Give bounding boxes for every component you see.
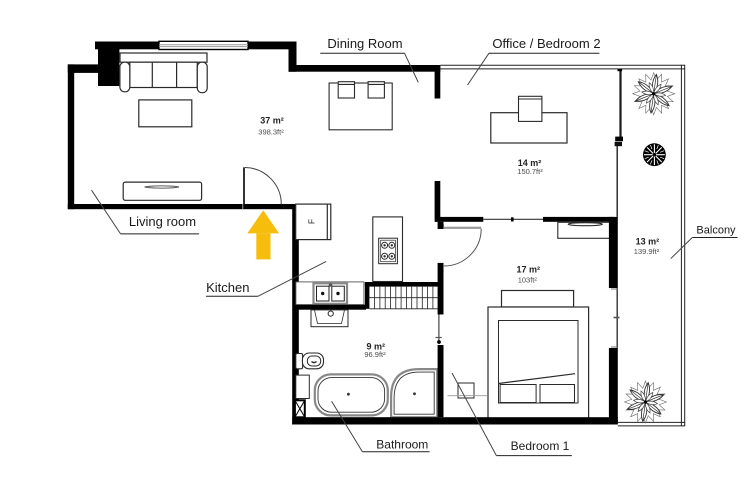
svg-text:103ft²: 103ft² — [518, 275, 538, 284]
svg-text:Kitchen: Kitchen — [206, 280, 249, 295]
svg-text:150.7ft²: 150.7ft² — [517, 167, 543, 176]
svg-text:Office / Bedroom 2: Office / Bedroom 2 — [492, 36, 600, 51]
svg-text:139.9ft²: 139.9ft² — [634, 247, 660, 256]
svg-text:Balcony: Balcony — [696, 224, 736, 236]
svg-text:Bedroom 1: Bedroom 1 — [511, 439, 570, 453]
svg-text:37 m²: 37 m² — [260, 116, 284, 126]
svg-text:13 m²: 13 m² — [636, 236, 660, 246]
svg-text:398.3ft²: 398.3ft² — [258, 127, 284, 136]
svg-text:96.9ft²: 96.9ft² — [364, 350, 386, 359]
svg-text:Living room: Living room — [129, 214, 196, 229]
svg-text:F: F — [306, 219, 316, 224]
svg-text:Dining Room: Dining Room — [327, 36, 402, 51]
svg-text:Bathroom: Bathroom — [376, 438, 428, 452]
svg-text:17 m²: 17 m² — [517, 265, 541, 275]
